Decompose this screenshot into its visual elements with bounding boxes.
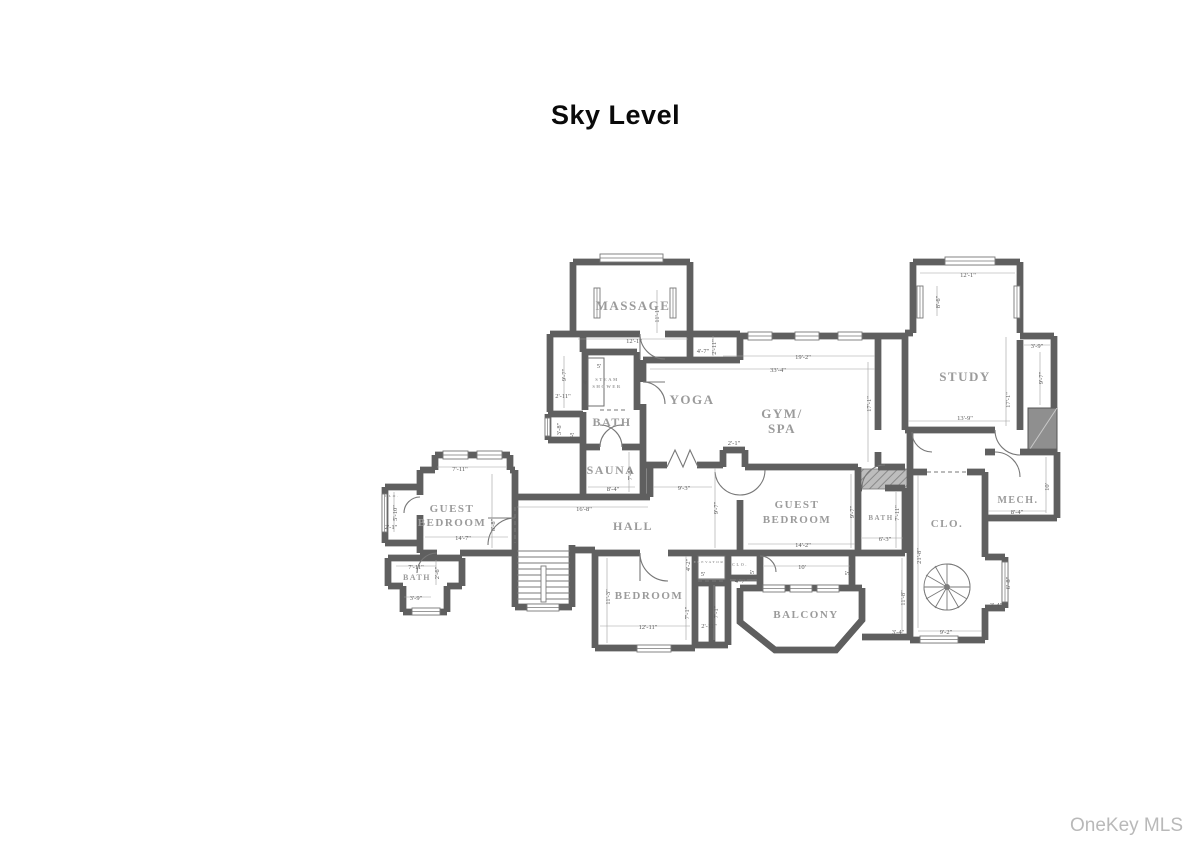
dimension-label: 7'-6" bbox=[627, 467, 634, 480]
dimension-label: 17'-1" bbox=[1005, 392, 1012, 408]
dimension-label: 11'-1" bbox=[654, 307, 661, 323]
room-label: BATH bbox=[868, 514, 893, 522]
dimension-label: 9'-7" bbox=[849, 505, 856, 518]
dimension-label: 8'-4" bbox=[1011, 509, 1024, 516]
room-label: STUDY bbox=[939, 369, 991, 384]
dimension-label: 5'-10" bbox=[392, 505, 399, 521]
room-label: GUEST bbox=[775, 499, 820, 511]
room-label: MECH. bbox=[997, 495, 1038, 506]
dimension-label: 9'-7" bbox=[713, 501, 720, 514]
room-label: YOGA bbox=[670, 392, 715, 407]
dimension-label: 5' bbox=[597, 363, 601, 370]
dimension-label: 3'-9" bbox=[1031, 343, 1044, 350]
dimension-label: 16'-8" bbox=[576, 506, 592, 513]
dimension-label: 3'-4" bbox=[990, 602, 1003, 609]
room-label: CLO. bbox=[732, 562, 748, 567]
dimension-label: 4'-7" bbox=[735, 578, 748, 585]
dimension-label: 8'-6" bbox=[935, 295, 942, 308]
dimension-label: 33'-4" bbox=[770, 367, 786, 374]
watermark: OneKey MLS bbox=[1070, 815, 1183, 837]
spiral-staircase bbox=[924, 564, 970, 610]
dimension-label: 4' bbox=[582, 380, 589, 384]
dimension-label: 5' bbox=[749, 570, 756, 574]
dimension-label: 11'-3" bbox=[605, 589, 612, 605]
dimension-label: 9'-7" bbox=[1038, 371, 1045, 384]
dimension-label: 2'-1" bbox=[728, 440, 741, 447]
dimension-label: 14'-7" bbox=[455, 535, 471, 542]
dimension-label: 11'-8" bbox=[900, 590, 907, 606]
dimension-label: 17'-1" bbox=[866, 396, 873, 412]
room-label: SHOWER bbox=[592, 384, 621, 389]
dimension-label: 10' bbox=[1044, 483, 1051, 491]
room-label: GYM/ bbox=[761, 406, 802, 421]
room-label: ELEVATOR bbox=[694, 560, 725, 564]
dimension-label: 2'-11" bbox=[711, 339, 718, 355]
dimension-label: 4'-2" bbox=[685, 558, 692, 571]
dimension-label: 6'-3" bbox=[879, 536, 892, 543]
dimension-label: 7'-11" bbox=[894, 505, 901, 521]
dimension-label: 2'-11" bbox=[701, 623, 717, 630]
dimension-label: 3'-4" bbox=[892, 629, 905, 636]
dimension-label: 21'-8" bbox=[916, 548, 923, 564]
room-label: BATH bbox=[592, 415, 631, 429]
room-label: BALCONY bbox=[773, 609, 839, 621]
dimension-label: 9'-3" bbox=[678, 485, 691, 492]
dimension-label: 2'-6" bbox=[434, 566, 441, 579]
room-label: CLO. bbox=[931, 518, 964, 530]
dimension-label: 4'-7" bbox=[697, 348, 710, 355]
dimension-label: 7'-11" bbox=[408, 564, 424, 571]
dimension-label: 6'-8" bbox=[1005, 576, 1012, 589]
dimension-label: 14'-2" bbox=[795, 542, 811, 549]
room-label: BEDROOM bbox=[615, 590, 684, 602]
room-label: STEAM bbox=[595, 377, 619, 382]
dimension-label: 12'-1" bbox=[960, 272, 976, 279]
dimension-label: 8'-4" bbox=[607, 486, 620, 493]
dimension-label: 2'-1" bbox=[385, 524, 398, 531]
room-label: BATH bbox=[403, 573, 431, 582]
room-label: GUEST bbox=[430, 503, 475, 515]
dimension-label: 7'-11" bbox=[452, 466, 468, 473]
floor-plan-drawing: MASSAGEYOGAGYM/SPASTUDYBATHSAUNAHALLGUES… bbox=[0, 0, 1191, 842]
dimension-label: 10' bbox=[798, 564, 806, 571]
floor-plan-page: Sky Level bbox=[0, 0, 1191, 842]
main-staircase bbox=[517, 551, 570, 602]
dimension-label: 9'-7" bbox=[561, 368, 568, 381]
dimension-label: 5' bbox=[701, 571, 705, 578]
room-label: BEDROOM bbox=[418, 517, 487, 529]
dimension-label: 19'-2" bbox=[795, 354, 811, 361]
room-label: SPA bbox=[768, 421, 796, 436]
dimension-label: 12'-1" bbox=[626, 338, 642, 345]
room-label: HALL bbox=[613, 519, 653, 533]
dimension-label: 2'-11" bbox=[555, 393, 571, 400]
dimension-label: 3'-8" bbox=[556, 422, 563, 435]
dimension-label: 8'-8" bbox=[490, 518, 497, 531]
dimension-label: 7'-1" bbox=[684, 606, 691, 619]
dimension-label: 5' bbox=[844, 571, 851, 575]
room-label: BEDROOM bbox=[763, 514, 832, 526]
room-label: CLO. bbox=[385, 494, 399, 498]
dimension-label: 3'-9" bbox=[410, 595, 423, 602]
dimension-label: 5' bbox=[570, 432, 574, 439]
dimension-label: 13'-9" bbox=[957, 415, 973, 422]
dimension-label: 12'-11" bbox=[639, 624, 658, 631]
dimension-label: 7'-1" bbox=[713, 605, 720, 618]
dimension-label: 9'-2" bbox=[940, 629, 953, 636]
